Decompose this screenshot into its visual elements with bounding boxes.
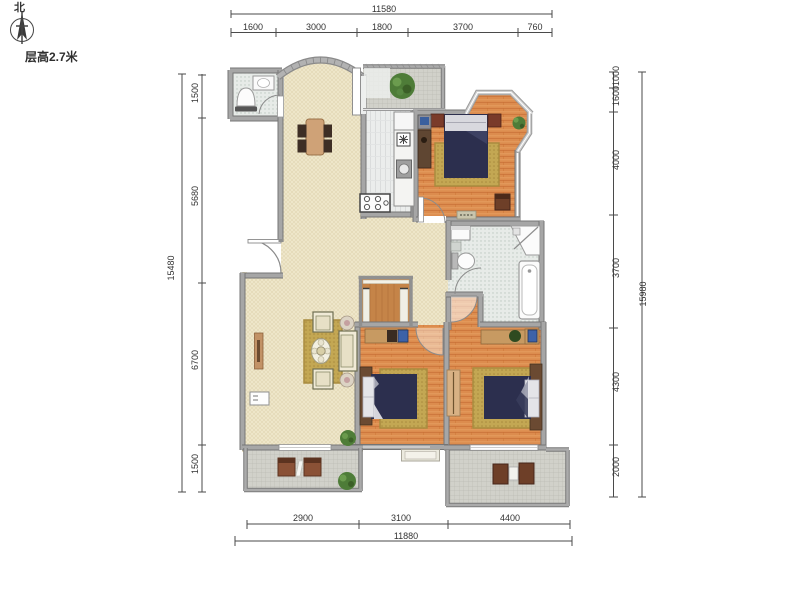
svg-text:3100: 3100 [391,513,411,523]
svg-text:1500: 1500 [190,454,200,474]
svg-text:11580: 11580 [372,4,396,14]
svg-text:北: 北 [14,0,25,14]
svg-text:层高2.7米: 层高2.7米 [25,49,79,64]
svg-text:3000: 3000 [306,22,326,32]
svg-text:15980: 15980 [638,281,648,306]
svg-text:4300: 4300 [611,372,621,392]
svg-text:2000: 2000 [611,457,621,477]
svg-text:11880: 11880 [394,531,418,541]
svg-text:760: 760 [527,22,542,32]
svg-text:1000: 1000 [611,66,621,86]
svg-text:6700: 6700 [190,350,200,370]
svg-text:4400: 4400 [500,513,520,523]
svg-text:3700: 3700 [453,22,473,32]
svg-text:5680: 5680 [190,186,200,206]
svg-text:1600: 1600 [243,22,263,32]
svg-text:1600: 1600 [611,86,621,106]
svg-text:1800: 1800 [372,22,392,32]
svg-text:15480: 15480 [166,255,176,280]
svg-text:3700: 3700 [611,258,621,278]
svg-text:4000: 4000 [611,150,621,170]
svg-text:2900: 2900 [293,513,313,523]
svg-text:1500: 1500 [190,83,200,103]
